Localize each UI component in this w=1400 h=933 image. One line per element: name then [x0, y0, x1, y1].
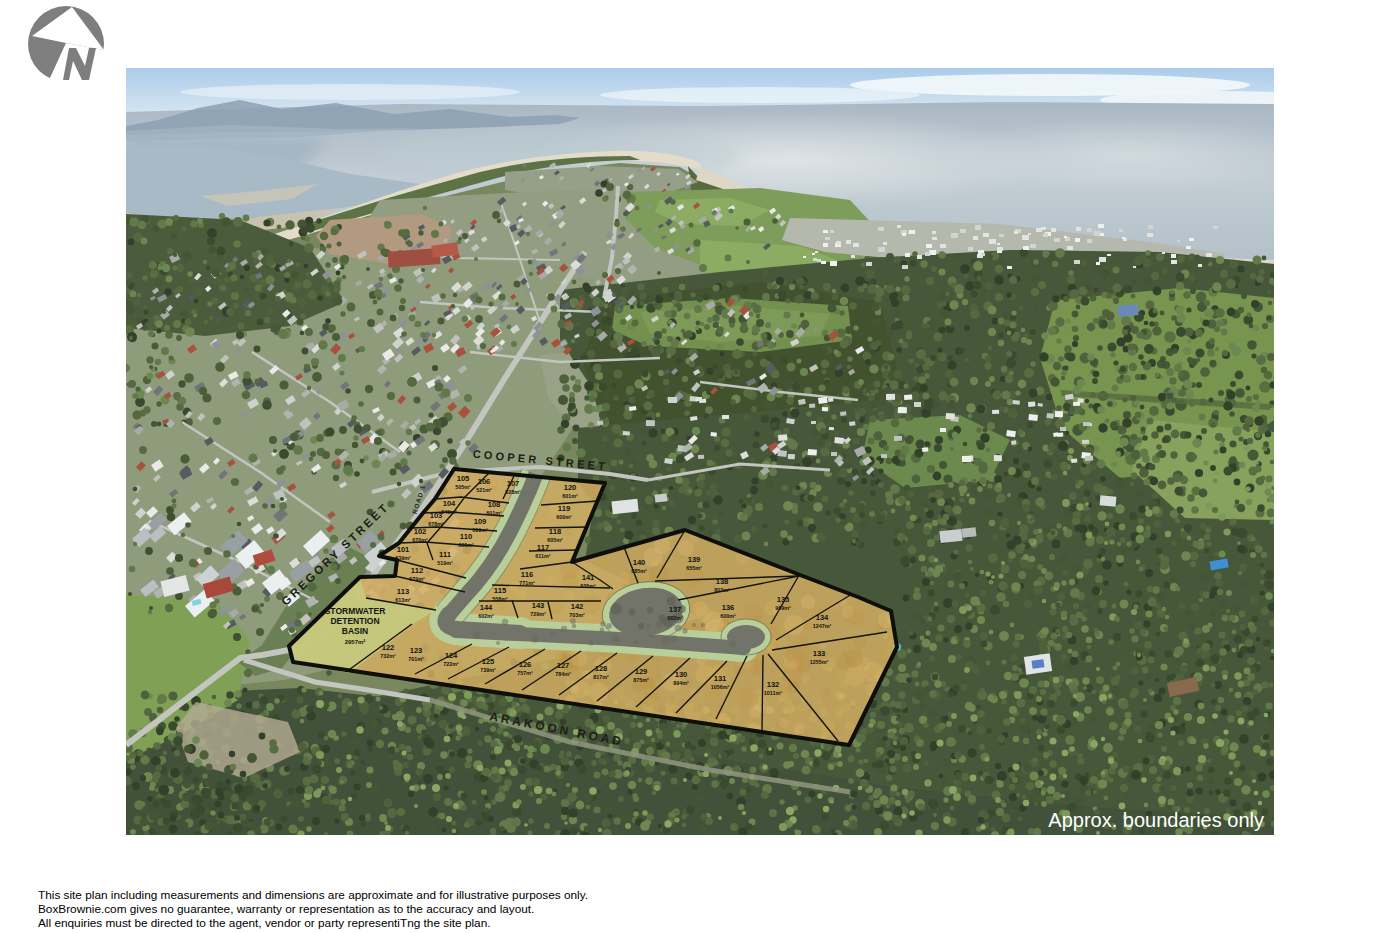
svg-text:106: 106	[478, 477, 491, 486]
svg-text:601m²: 601m²	[562, 493, 578, 499]
svg-text:113: 113	[397, 587, 409, 596]
svg-text:This site plan including measu: This site plan including measurements an…	[38, 888, 588, 902]
svg-text:108: 108	[488, 500, 501, 509]
svg-text:579m²: 579m²	[409, 576, 425, 582]
svg-text:119: 119	[558, 504, 570, 513]
svg-text:602m²: 602m²	[478, 613, 494, 619]
svg-text:134: 134	[816, 613, 829, 622]
svg-text:133: 133	[813, 649, 826, 658]
svg-text:116: 116	[521, 570, 533, 579]
svg-text:528m²: 528m²	[505, 489, 521, 495]
svg-text:605m²: 605m²	[547, 537, 563, 543]
svg-text:125: 125	[482, 657, 495, 666]
svg-text:All enquiries must be directed: All enquiries must be directed to the ag…	[38, 916, 490, 930]
svg-text:558m²: 558m²	[492, 596, 508, 602]
svg-text:144: 144	[480, 603, 493, 612]
svg-text:639m²: 639m²	[395, 555, 411, 561]
svg-text:128: 128	[595, 664, 608, 673]
svg-text:678m²: 678m²	[428, 521, 444, 527]
svg-text:129: 129	[635, 667, 648, 676]
svg-text:649m²: 649m²	[441, 509, 457, 515]
svg-text:105: 105	[457, 474, 470, 483]
svg-text:757m²: 757m²	[517, 670, 533, 676]
svg-text:110: 110	[460, 532, 472, 541]
svg-text:729m²: 729m²	[530, 611, 546, 617]
svg-text:103: 103	[430, 511, 443, 520]
svg-text:609m²: 609m²	[472, 527, 488, 533]
svg-text:138: 138	[716, 577, 729, 586]
svg-text:142: 142	[571, 602, 584, 611]
svg-text:600m²: 600m²	[720, 613, 736, 619]
svg-text:655m²: 655m²	[686, 565, 702, 571]
svg-text:1056m²: 1056m²	[711, 684, 730, 690]
svg-text:112: 112	[411, 566, 423, 575]
svg-text:Approx. boundaries only: Approx. boundaries only	[1048, 809, 1264, 831]
svg-text:141: 141	[582, 573, 595, 582]
svg-text:136: 136	[722, 603, 735, 612]
svg-text:135: 135	[777, 595, 790, 604]
svg-text:131: 131	[714, 674, 727, 683]
svg-text:139: 139	[688, 555, 701, 564]
svg-text:1247m²: 1247m²	[813, 623, 832, 629]
svg-text:613m²: 613m²	[395, 597, 411, 603]
svg-text:635m²: 635m²	[580, 583, 596, 589]
svg-text:600m²: 600m²	[556, 514, 572, 520]
svg-text:703m²: 703m²	[569, 612, 585, 618]
svg-text:969m²: 969m²	[775, 605, 791, 611]
svg-text:771m²: 771m²	[519, 580, 535, 586]
svg-text:107: 107	[507, 479, 520, 488]
svg-text:601m²: 601m²	[486, 510, 502, 516]
svg-text:519m²: 519m²	[437, 560, 453, 566]
svg-text:2957m²: 2957m²	[345, 639, 366, 645]
svg-text:109: 109	[474, 517, 487, 526]
svg-text:739m²: 739m²	[480, 667, 496, 673]
svg-text:894m²: 894m²	[673, 680, 689, 686]
svg-text:123: 123	[410, 646, 423, 655]
svg-text:505m²: 505m²	[455, 484, 471, 490]
svg-text:611m²: 611m²	[535, 553, 550, 559]
svg-text:1255m²: 1255m²	[810, 659, 829, 665]
svg-text:111: 111	[439, 550, 452, 559]
svg-text:521m²: 521m²	[476, 487, 492, 493]
svg-text:127: 127	[557, 661, 570, 670]
svg-text:BoxBrownie.com gives no guaran: BoxBrownie.com gives no guarantee, warra…	[38, 902, 534, 916]
svg-text:101: 101	[397, 545, 410, 554]
svg-text:115: 115	[494, 586, 507, 595]
svg-text:137: 137	[669, 605, 682, 614]
svg-text:132: 132	[767, 680, 780, 689]
svg-text:600m²: 600m²	[458, 542, 474, 548]
svg-text:875m²: 875m²	[633, 677, 649, 683]
svg-text:DETENTION: DETENTION	[330, 616, 379, 626]
svg-text:124: 124	[445, 651, 458, 660]
svg-text:122: 122	[382, 643, 395, 652]
svg-text:130: 130	[675, 670, 688, 679]
svg-text:BASIN: BASIN	[342, 626, 368, 636]
svg-text:722m²: 722m²	[443, 661, 459, 667]
svg-text:104: 104	[443, 499, 456, 508]
svg-text:117: 117	[537, 543, 549, 552]
svg-text:817m²: 817m²	[593, 674, 609, 680]
svg-text:1011m²: 1011m²	[764, 690, 782, 696]
svg-text:126: 126	[519, 660, 532, 669]
svg-text:143: 143	[532, 601, 545, 610]
svg-text:120: 120	[564, 483, 577, 492]
svg-text:682m²: 682m²	[667, 615, 683, 621]
svg-text:701m²: 701m²	[408, 656, 424, 662]
svg-text:685m²: 685m²	[631, 568, 647, 574]
svg-text:102: 102	[414, 527, 427, 536]
svg-text:118: 118	[549, 527, 561, 536]
svg-text:670m²: 670m²	[412, 537, 428, 543]
svg-text:803m²: 803m²	[714, 587, 730, 593]
svg-text:STORMWATER: STORMWATER	[325, 606, 386, 616]
svg-text:732m²: 732m²	[380, 653, 396, 659]
svg-text:140: 140	[633, 558, 646, 567]
svg-text:784m²: 784m²	[555, 671, 571, 677]
